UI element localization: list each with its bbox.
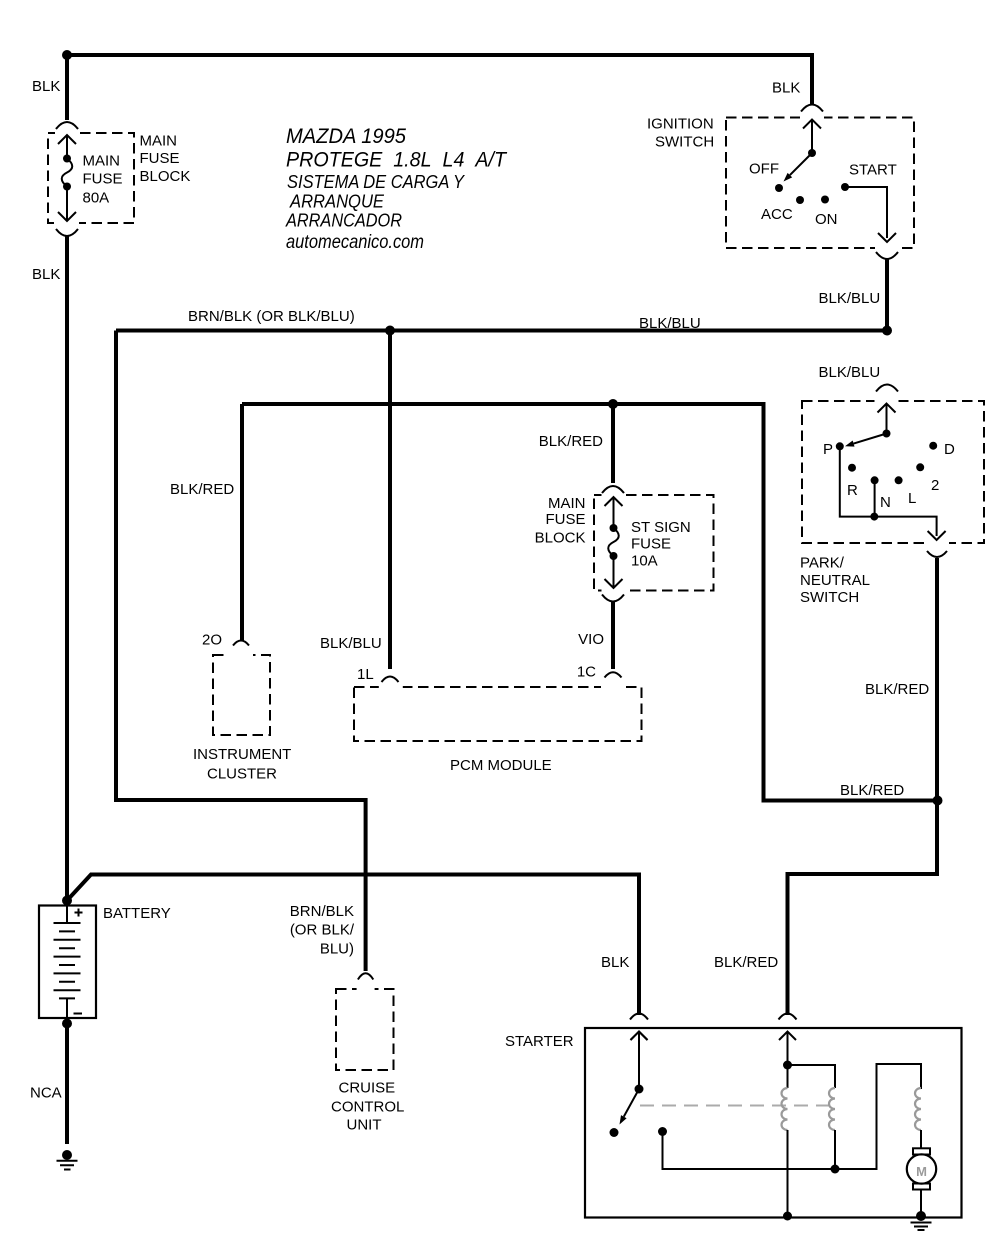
svg-text:NCA: NCA <box>30 1085 62 1102</box>
svg-text:FUSE: FUSE <box>545 511 585 528</box>
svg-text:1C: 1C <box>577 664 596 681</box>
svg-text:MAIN: MAIN <box>548 495 586 512</box>
svg-text:BLK: BLK <box>32 78 60 95</box>
svg-text:1L: 1L <box>357 666 374 683</box>
svg-text:BRN/BLK: BRN/BLK <box>290 903 354 920</box>
svg-text:INSTRUMENT: INSTRUMENT <box>193 746 291 763</box>
svg-text:BLK: BLK <box>772 80 800 97</box>
svg-text:R: R <box>847 482 858 499</box>
svg-text:FUSE: FUSE <box>631 536 671 553</box>
svg-text:CONTROL: CONTROL <box>331 1099 404 1116</box>
svg-text:L: L <box>908 490 916 507</box>
svg-text:NEUTRAL: NEUTRAL <box>800 572 870 589</box>
svg-text:BLK/BLU: BLK/BLU <box>639 315 701 332</box>
svg-text:BLK/BLU: BLK/BLU <box>819 290 881 307</box>
svg-text:PCM MODULE: PCM MODULE <box>450 757 552 774</box>
svg-text:automecanico.com: automecanico.com <box>286 232 424 253</box>
svg-text:80A: 80A <box>83 190 110 207</box>
svg-text:N: N <box>880 494 891 511</box>
svg-text:FUSE: FUSE <box>140 150 180 167</box>
svg-text:BLK/BLU: BLK/BLU <box>320 635 382 652</box>
svg-text:MAIN: MAIN <box>140 133 178 150</box>
svg-text:MAZDA 1995: MAZDA 1995 <box>286 125 406 148</box>
svg-text:BLK/RED: BLK/RED <box>539 433 603 450</box>
svg-text:IGNITION: IGNITION <box>647 116 714 133</box>
svg-text:ARRANCADOR: ARRANCADOR <box>285 211 402 231</box>
svg-text:M: M <box>916 1164 927 1179</box>
svg-text:BRN/BLK (OR BLK/BLU): BRN/BLK (OR BLK/BLU) <box>188 308 355 325</box>
svg-text:CRUISE: CRUISE <box>339 1080 396 1097</box>
svg-text:PROTEGE 1.8L L4 A/T: PROTEGE 1.8L L4 A/T <box>286 148 508 172</box>
svg-text:(OR BLK/: (OR BLK/ <box>290 922 355 939</box>
svg-text:OFF: OFF <box>749 161 779 178</box>
svg-text:2: 2 <box>931 477 939 494</box>
svg-text:SWITCH: SWITCH <box>800 589 859 606</box>
svg-text:BLU): BLU) <box>320 941 354 958</box>
svg-text:CLUSTER: CLUSTER <box>207 766 277 783</box>
svg-text:ON: ON <box>815 211 838 228</box>
svg-text:PARK/: PARK/ <box>800 555 845 572</box>
svg-text:SISTEMA DE CARGA Y: SISTEMA DE CARGA Y <box>287 172 466 192</box>
svg-text:BATTERY: BATTERY <box>103 905 171 922</box>
svg-text:MAIN: MAIN <box>83 153 121 170</box>
svg-text:ARRANQUE: ARRANQUE <box>289 192 385 212</box>
svg-text:ST SIGN: ST SIGN <box>631 519 691 536</box>
svg-text:BLK: BLK <box>601 954 629 971</box>
svg-text:10A: 10A <box>631 553 658 570</box>
svg-text:FUSE: FUSE <box>83 171 123 188</box>
svg-text:BLK/RED: BLK/RED <box>714 954 778 971</box>
svg-text:SWITCH: SWITCH <box>655 134 714 151</box>
svg-text:BLK/RED: BLK/RED <box>840 782 904 799</box>
svg-text:D: D <box>944 441 955 458</box>
svg-text:STARTER: STARTER <box>505 1033 574 1050</box>
svg-text:ACC: ACC <box>761 206 793 223</box>
svg-text:BLK/RED: BLK/RED <box>170 481 234 498</box>
svg-text:2O: 2O <box>202 632 222 649</box>
svg-text:P: P <box>823 441 833 458</box>
svg-text:BLOCK: BLOCK <box>140 168 191 185</box>
svg-text:BLK/RED: BLK/RED <box>865 681 929 698</box>
svg-text:START: START <box>849 162 897 179</box>
svg-text:BLK: BLK <box>32 266 60 283</box>
svg-text:VIO: VIO <box>578 631 604 648</box>
svg-text:BLOCK: BLOCK <box>535 529 586 546</box>
svg-text:BLK/BLU: BLK/BLU <box>819 364 881 381</box>
svg-text:UNIT: UNIT <box>347 1117 382 1134</box>
